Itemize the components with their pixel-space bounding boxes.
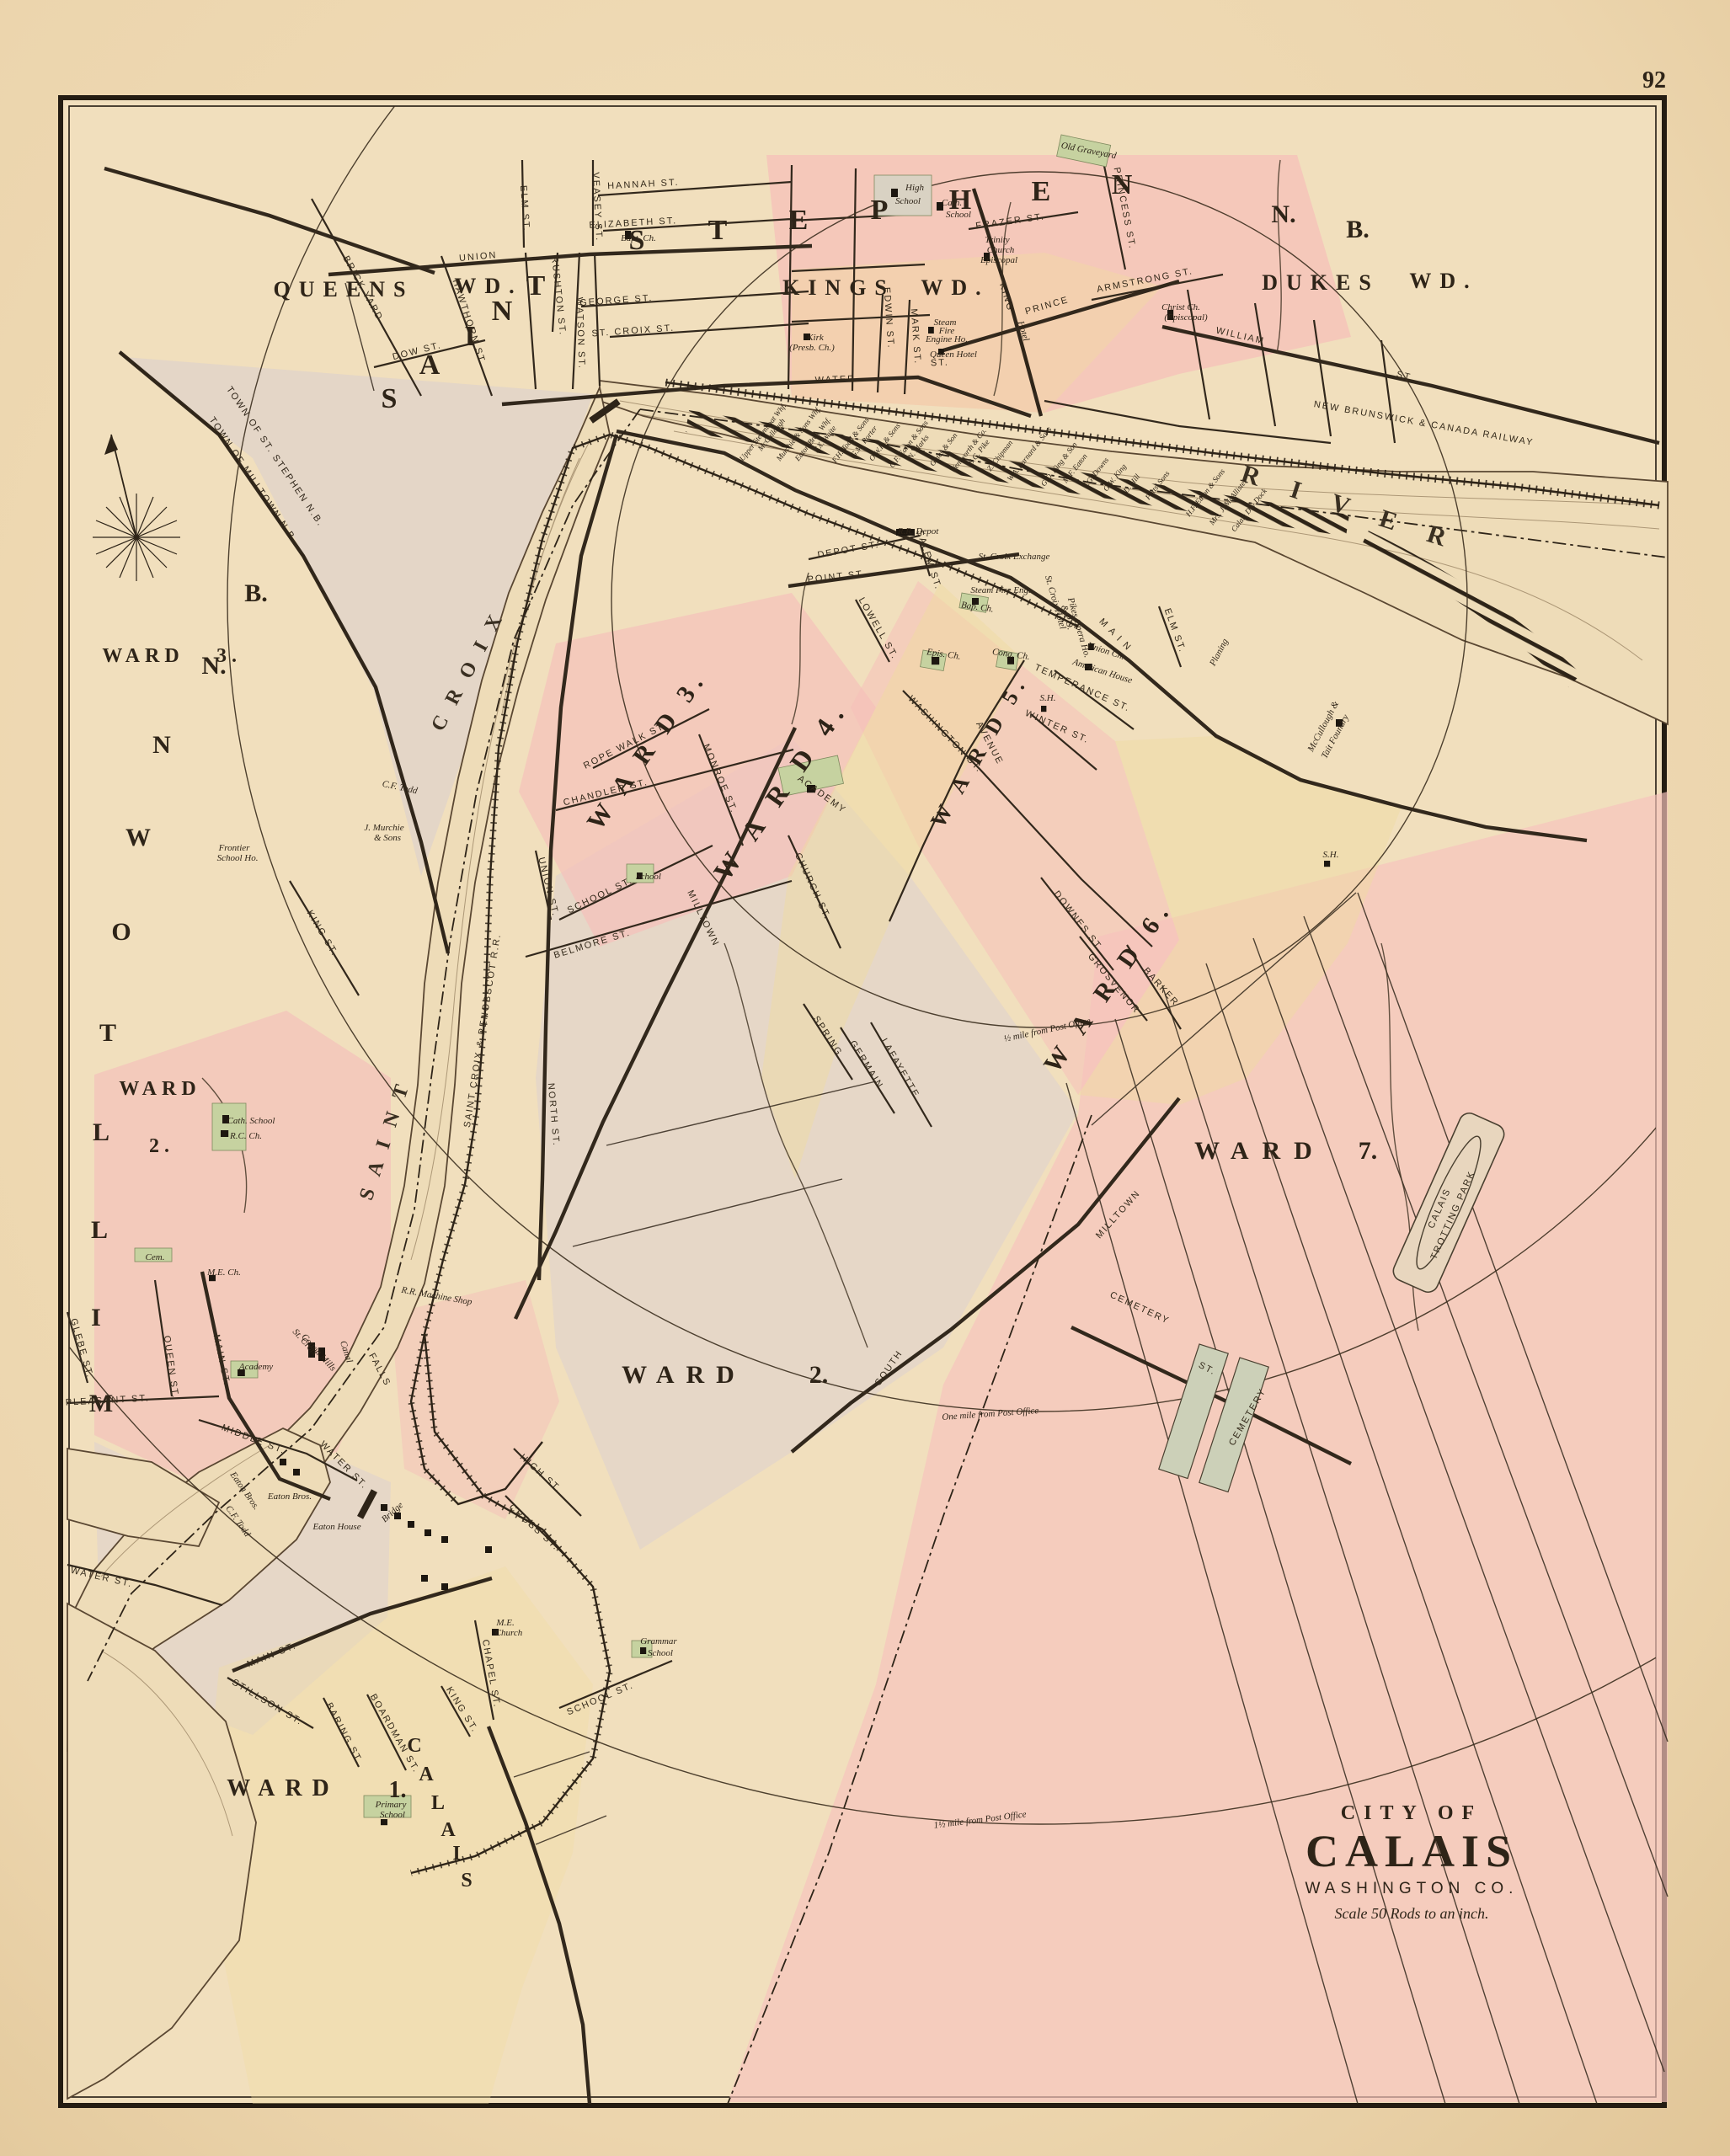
place-cath-school-nb-2: R.C. Ch.: [229, 1131, 262, 1141]
letter: E: [789, 205, 809, 236]
place-grammar-school-2: School: [648, 1648, 673, 1658]
letter: S: [382, 383, 398, 414]
page-number: 92: [1642, 67, 1666, 93]
label-nb-b: B.: [1346, 216, 1370, 243]
letter: T: [526, 270, 546, 302]
place-school-house-2: S.H.: [1323, 850, 1339, 860]
letter: S: [461, 1870, 472, 1892]
place-murchie-2: & Sons: [374, 833, 401, 843]
place-eaton-bros-1: Eaton Bros.: [267, 1492, 312, 1502]
letter: I: [452, 1843, 460, 1865]
place-cemetery-small: Cem.: [146, 1252, 165, 1262]
place-steam-fire-3: Engine Ho.: [925, 334, 968, 344]
letter: A: [419, 1764, 434, 1785]
place-rr-depot: R.R. Depot: [897, 526, 940, 536]
label-ward3-nb-num: 3.: [216, 645, 242, 667]
label-ward3-nb: WARD: [102, 645, 184, 667]
place-me-church-1: M.E.: [495, 1618, 514, 1628]
place-cath-school-nb-1: Cath. School: [227, 1116, 275, 1126]
street-water-nb: WATER: [814, 374, 856, 386]
place-steam-fire-calais: Steam Fire Eng.: [970, 585, 1030, 595]
letter: L: [91, 1216, 108, 1244]
letter: I: [91, 1304, 101, 1331]
letter: L: [93, 1118, 109, 1146]
place-bapt-ch: Bapt. Ch.: [621, 233, 656, 243]
letter: P: [871, 195, 889, 226]
label-ward1-calais: WARD: [227, 1775, 339, 1801]
place-primary-school-1: Primary: [375, 1800, 407, 1810]
place-kirk-2: (Presb. Ch.): [789, 343, 835, 353]
letter: N: [152, 731, 171, 759]
place-cath-school-2: School: [946, 210, 971, 220]
letter: B.: [244, 579, 268, 607]
place-high-school-2: School: [895, 196, 921, 206]
letter: W: [125, 824, 151, 851]
map-canvas: 92: [0, 0, 1730, 2156]
place-primary-school-2: School: [380, 1810, 405, 1820]
place-school-house-1: S.H.: [1040, 693, 1056, 703]
place-kirk-1: Kirk: [806, 333, 825, 343]
place-queen-hotel: Queen Hotel: [930, 350, 977, 360]
label-ward2-nb-num: 2.: [149, 1135, 174, 1157]
label-ward2-nb: WARD: [119, 1078, 200, 1100]
label-queens-ward: QUEENS: [274, 277, 414, 302]
letter: A: [441, 1819, 456, 1841]
place-academy-nb: Academy: [238, 1362, 273, 1372]
letter: N: [492, 296, 513, 327]
map-title-calais: CALAIS: [1306, 1826, 1518, 1876]
letter: E: [1032, 176, 1051, 207]
letter: T: [708, 215, 728, 246]
place-christ-ch-1: Christ Ch.: [1161, 302, 1200, 312]
letter: T: [99, 1019, 116, 1047]
place-christ-ch-2: (Episcopal): [1164, 312, 1208, 323]
label-dukes-ward: DUKES: [1262, 270, 1380, 295]
map-title-scale: Scale 50 Rods to an inch.: [1335, 1905, 1489, 1922]
label-dukes-wd: WD.: [1409, 269, 1477, 293]
place-frontier-school-1: Frontier: [218, 843, 251, 853]
place-grammar-school-1: Grammar: [640, 1636, 677, 1646]
map-title-city-of: CITY OF: [1341, 1802, 1482, 1824]
place-me-ch-nb: M.E. Ch.: [206, 1267, 241, 1278]
place-school-ward2: School: [636, 872, 661, 882]
place-exchange: St. Croix Exchange: [979, 552, 1050, 562]
label-kings-wd: WD.: [921, 275, 989, 300]
place-cath-school-1: Cath.: [942, 198, 962, 208]
letter: O: [111, 918, 131, 946]
label-kings-ward: KINGS: [782, 275, 895, 300]
place-frontier-school-2: School Ho.: [217, 853, 259, 863]
place-murchie-1: J. Murchie: [364, 823, 403, 833]
place-high-school-1: High: [905, 183, 925, 193]
label-ward2-num: 2.: [809, 1361, 829, 1389]
place-trinity-1: Trinity: [985, 235, 1009, 245]
letter: L: [431, 1792, 445, 1814]
place-eaton-house: Eaton House: [312, 1522, 360, 1532]
place-trinity-2: Church: [987, 245, 1015, 255]
map-title-county: WASHINGTON CO.: [1306, 1880, 1519, 1897]
label-ward7-calais: WARD: [1194, 1137, 1326, 1165]
label-ward2-calais: WARD: [622, 1361, 746, 1389]
atlas-map-page: 92: [0, 0, 1730, 2156]
label-nb-n: N.: [1271, 200, 1295, 228]
place-me-church-2: Church: [495, 1628, 523, 1638]
place-trinity-3: Episcopal: [980, 255, 1017, 265]
label-ward7-num: 7.: [1359, 1137, 1378, 1165]
